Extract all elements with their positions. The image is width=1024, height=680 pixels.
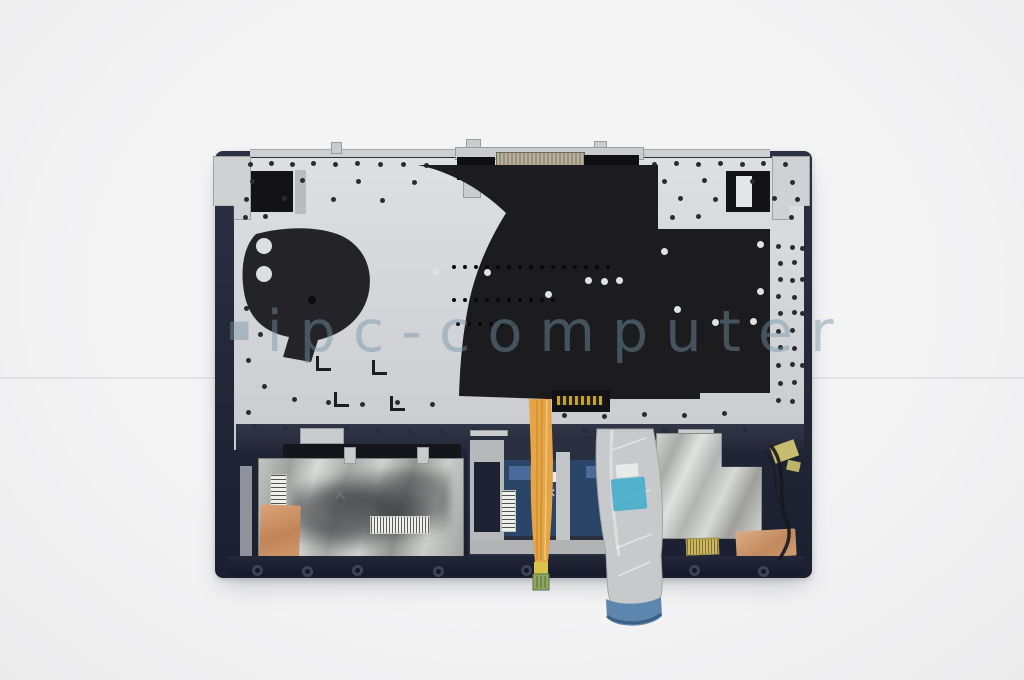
- watermark: ■ipc-computer: [228, 304, 851, 361]
- cable-sticker-cyan: [611, 477, 648, 512]
- cable-label-white: [616, 463, 639, 478]
- backlight-cable-neck: [534, 562, 548, 575]
- watermark-square-icon: ■: [228, 315, 251, 343]
- touchpad-cable: [596, 429, 662, 622]
- watermark-text: ipc-computer: [267, 299, 851, 365]
- product-photo: ✕ ✕: [0, 0, 1024, 680]
